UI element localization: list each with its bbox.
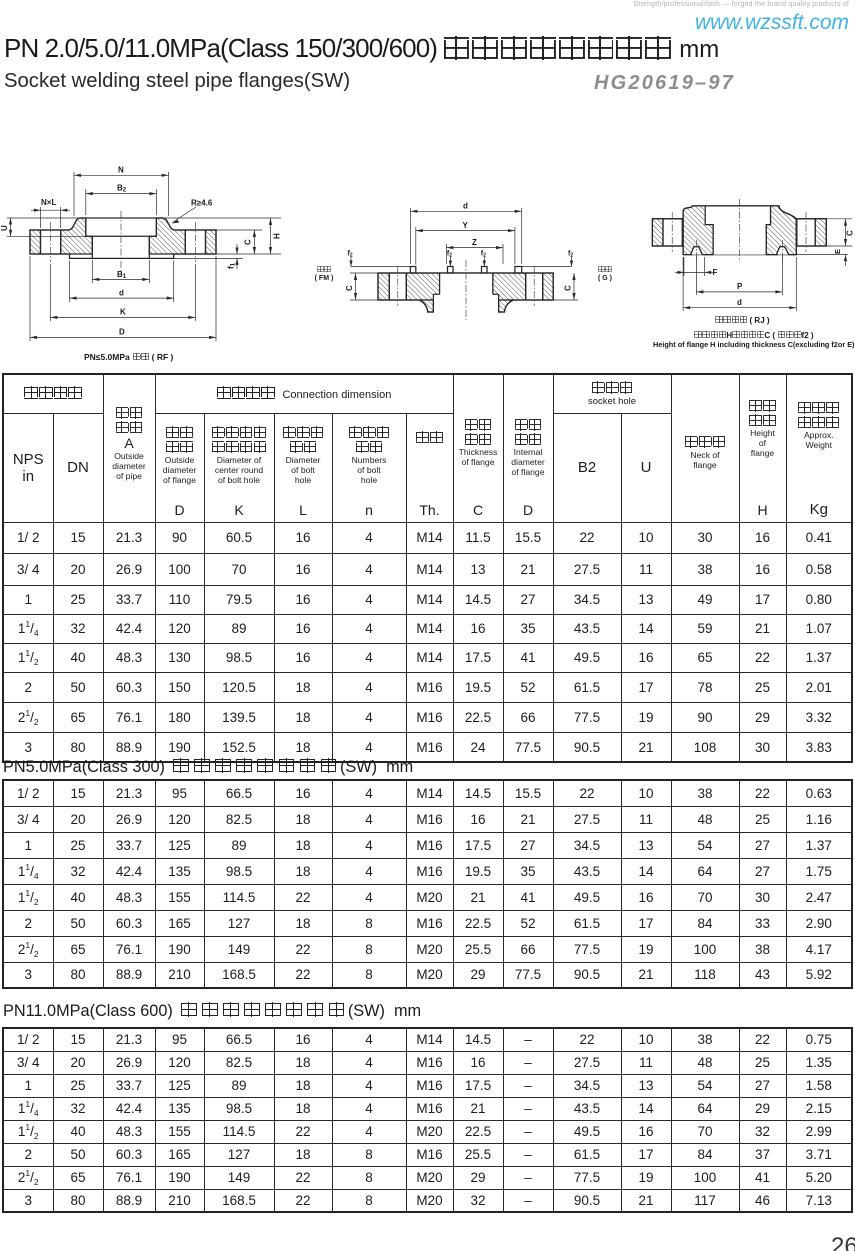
svg-text:f2: f2 [481, 251, 486, 259]
svg-text:Z: Z [472, 238, 477, 247]
svg-text:d: d [119, 288, 124, 297]
svg-text:C: C [564, 285, 573, 291]
svg-text:C: C [244, 239, 253, 245]
svg-text:N×L: N×L [41, 198, 56, 207]
svg-text:d: d [737, 298, 742, 307]
svg-text:C: C [345, 285, 354, 291]
svg-text:P: P [737, 282, 743, 291]
svg-text:K: K [120, 308, 126, 317]
svg-text:f2: f2 [348, 251, 353, 259]
svg-text:B2: B2 [117, 184, 127, 194]
svg-text:R≥4.6: R≥4.6 [191, 198, 213, 207]
svg-text:f1: f1 [227, 262, 237, 269]
svg-text:d: d [463, 202, 468, 211]
svg-text:F: F [713, 268, 718, 277]
svg-text:Y: Y [463, 221, 469, 230]
svg-text:f2: f2 [447, 251, 452, 259]
svg-text:H: H [273, 233, 282, 239]
svg-text:E: E [833, 249, 842, 254]
svg-text:N: N [118, 166, 124, 175]
svg-text:B1: B1 [117, 270, 127, 280]
svg-text:D: D [119, 328, 125, 337]
svg-text:C: C [846, 230, 855, 236]
svg-text:U: U [0, 225, 9, 231]
svg-text:f2: f2 [568, 251, 573, 259]
